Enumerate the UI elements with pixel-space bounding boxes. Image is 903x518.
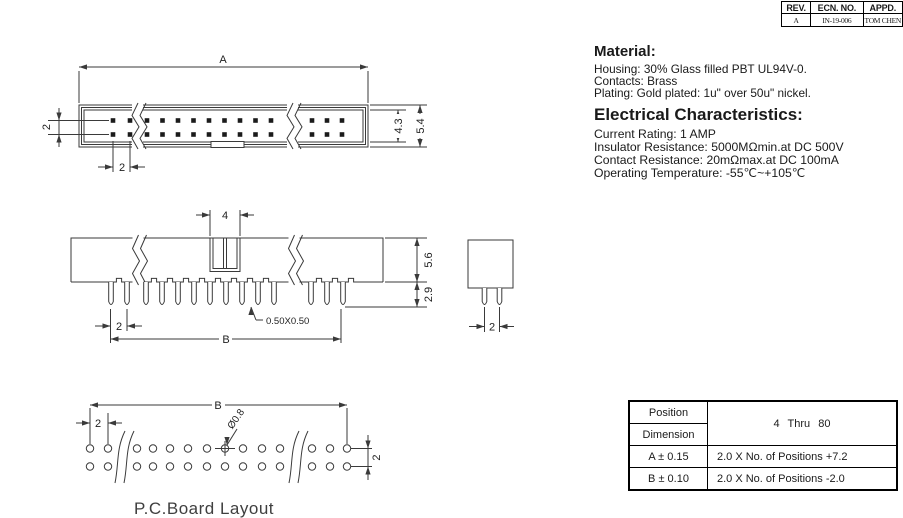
electrical-line: Insulator Resistance: 5000MΩmin.at DC 50… — [594, 141, 896, 154]
rev-value: A — [782, 14, 811, 27]
table-row: A ± 0.15 2.0 X No. of Positions +7.2 — [629, 446, 897, 468]
front-dim-body-height-label: 5.6 — [423, 252, 435, 267]
material-line: Plating: Gold plated: 1u" over 50u" nick… — [594, 87, 896, 99]
revision-table: REV. ECN. NO. APPD. A IN-19-006 TOM CHEN — [781, 1, 903, 27]
electrical-line: Contact Resistance: 20mΩmax.at DC 100mA — [594, 154, 896, 167]
pcb-dim-span-label: B — [214, 400, 221, 412]
top-dim-col-pitch-label: 2 — [119, 162, 125, 174]
dimension-spec-table: Position 4 Thru 80 Dimension A ± 0.15 2.… — [628, 400, 898, 491]
side-view-body — [468, 240, 513, 305]
top-dim-inner-height-label: 4.3 — [393, 118, 405, 133]
front-view-dimensions — [95, 210, 427, 343]
material-heading: Material: — [594, 44, 896, 60]
top-dim-row-pitch-label: 2 — [41, 124, 53, 130]
top-dim-a-label: A — [219, 54, 227, 66]
pcb-dim-pitch-label: 2 — [95, 418, 101, 430]
pcb-dim-hole-label: Ø0.8 — [226, 407, 248, 431]
revision-data-row: A IN-19-006 TOM CHEN — [782, 14, 903, 27]
front-dim-span-label: B — [222, 334, 229, 346]
table-row: B ± 0.10 2.0 X No. of Positions -2.0 — [629, 468, 897, 491]
front-dim-pitch-label: 2 — [116, 321, 122, 333]
pcb-dim-row-pitch-label: 2 — [371, 454, 383, 460]
formula-b-cell: 2.0 X No. of Positions -2.0 — [708, 468, 898, 491]
formula-a-cell: 2.0 X No. of Positions +7.2 — [708, 446, 898, 468]
front-dim-key-label: 4 — [222, 210, 228, 222]
range-cell: 4 Thru 80 — [708, 401, 898, 446]
electrical-line: Current Rating: 1 AMP — [594, 128, 896, 141]
electrical-line: Operating Temperature: -55℃~+105℃ — [594, 167, 896, 180]
front-dim-pin-length-label: 2.9 — [423, 287, 435, 302]
top-dim-outer-height-label: 5.4 — [415, 118, 427, 133]
appd-value: TOM CHEN — [863, 14, 902, 27]
datasheet-page: A 2 2 4.3 5.4 4 5.6 2.9 2 B 0.50X0.50 2 … — [0, 0, 903, 518]
top-view-body — [79, 103, 368, 149]
dim-b-cell: B ± 0.10 — [629, 468, 708, 491]
ecn-header: ECN. NO. — [811, 2, 863, 14]
revision-header-row: REV. ECN. NO. APPD. — [782, 2, 903, 14]
rev-header: REV. — [782, 2, 811, 14]
dimension-label-cell: Dimension — [629, 424, 708, 446]
side-dim-pitch-label: 2 — [489, 322, 495, 334]
ecn-value: IN-19-006 — [811, 14, 863, 27]
pcb-layout-holes — [86, 431, 350, 483]
front-view-body — [71, 235, 383, 305]
table-row: Position 4 Thru 80 — [629, 401, 897, 424]
front-dim-pin-square-label: 0.50X0.50 — [266, 316, 309, 327]
top-view-dimensions — [48, 64, 427, 172]
notes-block: Material: Housing: 30% Glass filled PBT … — [594, 44, 896, 180]
position-label-cell: Position — [629, 401, 708, 424]
dim-a-cell: A ± 0.15 — [629, 446, 708, 468]
pcb-layout-caption: P.C.Board Layout — [106, 499, 302, 518]
electrical-heading: Electrical Characteristics: — [594, 105, 896, 124]
appd-header: APPD. — [863, 2, 902, 14]
